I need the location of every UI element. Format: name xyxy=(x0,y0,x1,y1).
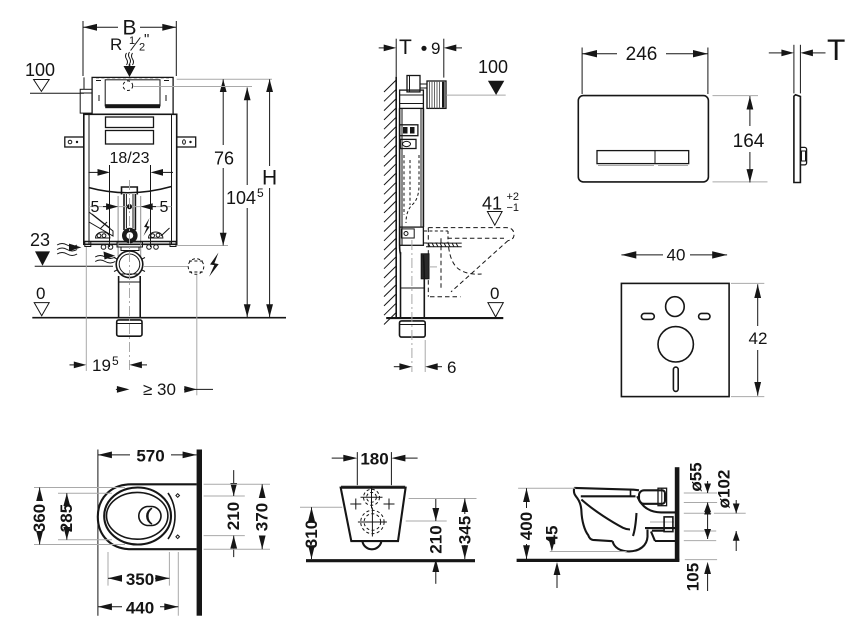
svg-text:T: T xyxy=(827,34,845,67)
svg-text:23: 23 xyxy=(30,230,50,250)
svg-text:400: 400 xyxy=(517,512,536,540)
svg-text:−1: −1 xyxy=(507,202,520,214)
svg-text:T: T xyxy=(399,36,412,59)
svg-text:6: 6 xyxy=(447,358,456,377)
svg-text:41: 41 xyxy=(482,194,502,214)
svg-text:H: H xyxy=(262,167,277,190)
svg-text:0: 0 xyxy=(36,284,45,303)
svg-text:105: 105 xyxy=(684,563,703,591)
svg-text:100: 100 xyxy=(25,60,55,80)
svg-text:R: R xyxy=(110,35,122,54)
svg-text:9: 9 xyxy=(431,39,440,58)
svg-text:164: 164 xyxy=(733,131,765,152)
svg-text:210: 210 xyxy=(224,502,243,530)
svg-text:350: 350 xyxy=(126,570,154,589)
svg-text:440: 440 xyxy=(126,598,154,617)
svg-text:19: 19 xyxy=(92,356,111,375)
svg-text:210: 210 xyxy=(426,525,445,553)
svg-text:45: 45 xyxy=(542,526,561,545)
svg-text:40: 40 xyxy=(667,246,686,265)
svg-text:246: 246 xyxy=(626,44,658,65)
svg-text:100: 100 xyxy=(478,57,508,77)
svg-text:5: 5 xyxy=(112,354,119,368)
svg-text:310: 310 xyxy=(302,520,321,548)
svg-text:76: 76 xyxy=(214,149,234,169)
svg-text:5: 5 xyxy=(91,199,100,216)
svg-text:285: 285 xyxy=(57,504,76,532)
svg-text:42: 42 xyxy=(749,329,768,348)
svg-text:ø55: ø55 xyxy=(687,462,706,491)
svg-text:": " xyxy=(144,31,149,48)
svg-text:104: 104 xyxy=(226,188,256,208)
svg-text:≥ 30: ≥ 30 xyxy=(143,380,176,399)
svg-text:360: 360 xyxy=(30,504,49,532)
svg-text:18/23: 18/23 xyxy=(109,150,149,167)
svg-text:180: 180 xyxy=(360,450,388,469)
svg-text:345: 345 xyxy=(455,516,474,544)
svg-text:370: 370 xyxy=(253,503,272,531)
svg-text:0: 0 xyxy=(490,284,499,303)
svg-text:570: 570 xyxy=(136,447,164,466)
svg-text:ø102: ø102 xyxy=(715,470,734,509)
svg-text:5: 5 xyxy=(160,199,169,216)
